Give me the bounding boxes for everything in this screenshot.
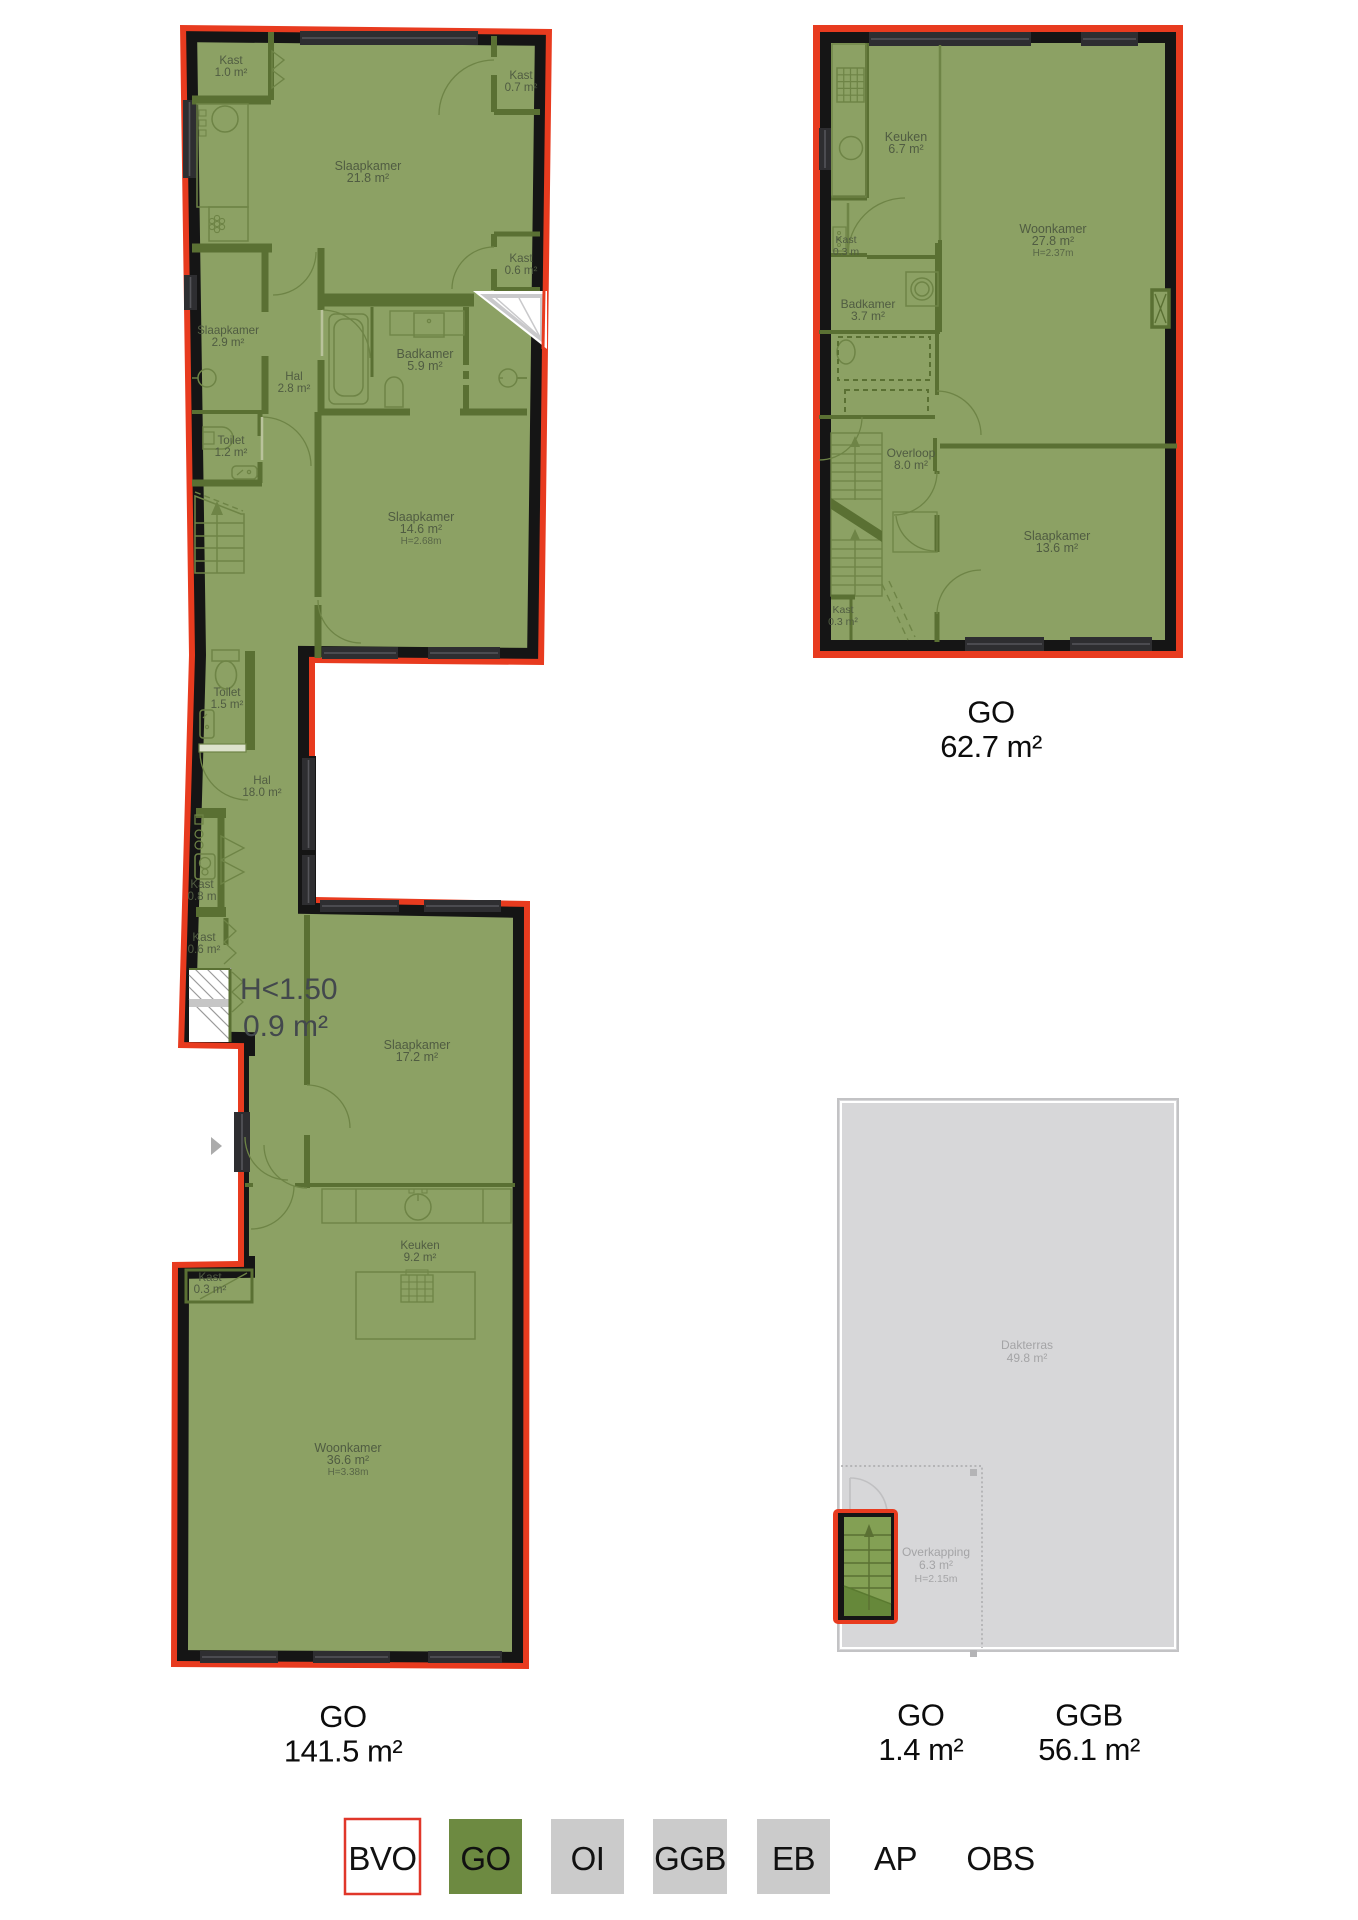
svg-text:0.8 m: 0.8 m (188, 890, 217, 903)
svg-text:6.3 m²: 6.3 m² (919, 1558, 953, 1572)
svg-text:Overkapping: Overkapping (902, 1545, 970, 1559)
svg-text:0.6 m²: 0.6 m² (505, 264, 538, 277)
svg-text:GO: GO (967, 695, 1014, 730)
svg-text:Kast: Kast (835, 234, 856, 246)
svg-text:H=2.68m: H=2.68m (401, 536, 442, 547)
svg-text:62.7 m²: 62.7 m² (940, 729, 1042, 764)
svg-text:141.5 m²: 141.5 m² (284, 1734, 403, 1769)
svg-text:18.0 m²: 18.0 m² (242, 786, 281, 799)
svg-text:H=2.37m: H=2.37m (1033, 248, 1074, 259)
svg-text:3.7 m²: 3.7 m² (851, 309, 885, 323)
svg-text:27.8 m²: 27.8 m² (1032, 234, 1074, 248)
svg-text:21.8 m²: 21.8 m² (347, 171, 389, 185)
svg-text:0.9 m²: 0.9 m² (243, 1010, 328, 1043)
svg-text:H=3.38m: H=3.38m (328, 1467, 369, 1478)
svg-text:49.8 m²: 49.8 m² (1007, 1351, 1048, 1365)
svg-text:0.6 m²: 0.6 m² (188, 943, 221, 956)
svg-text:0.3 m²: 0.3 m² (194, 1283, 227, 1296)
svg-text:36.6 m²: 36.6 m² (327, 1453, 369, 1467)
svg-text:Dakterras: Dakterras (1001, 1338, 1053, 1352)
svg-text:0.3 m²: 0.3 m² (828, 616, 858, 628)
svg-text:56.1 m²: 56.1 m² (1038, 1732, 1140, 1767)
svg-text:BVO: BVO (348, 1840, 416, 1877)
svg-text:2.9 m²: 2.9 m² (212, 336, 245, 349)
svg-text:GO: GO (897, 1698, 944, 1733)
svg-text:14.6 m²: 14.6 m² (400, 522, 442, 536)
svg-text:1.4 m²: 1.4 m² (878, 1732, 963, 1767)
svg-text:5.9 m²: 5.9 m² (407, 359, 442, 373)
svg-text:1.0 m²: 1.0 m² (215, 66, 248, 79)
svg-text:H<1.50: H<1.50 (240, 973, 338, 1006)
svg-text:OBS: OBS (966, 1840, 1034, 1877)
svg-text:0.7 m²: 0.7 m² (505, 81, 538, 94)
svg-text:GGB: GGB (654, 1840, 726, 1877)
svg-text:AP: AP (874, 1840, 917, 1877)
svg-text:0.3 m: 0.3 m (833, 246, 860, 258)
svg-text:GGB: GGB (1055, 1698, 1122, 1733)
svg-text:6.7 m²: 6.7 m² (888, 142, 923, 156)
svg-text:9.2 m²: 9.2 m² (404, 1251, 437, 1264)
svg-text:2.8 m²: 2.8 m² (278, 382, 311, 395)
svg-text:EB: EB (772, 1840, 815, 1877)
svg-text:H=2.15m: H=2.15m (915, 1573, 958, 1585)
svg-text:1.2 m²: 1.2 m² (215, 446, 248, 459)
svg-text:GO: GO (319, 1699, 366, 1734)
svg-text:1.5 m²: 1.5 m² (211, 698, 244, 711)
svg-text:GO: GO (460, 1840, 510, 1877)
svg-text:Kast: Kast (832, 604, 853, 616)
svg-text:17.2 m²: 17.2 m² (396, 1050, 438, 1064)
svg-text:13.6 m²: 13.6 m² (1036, 541, 1078, 555)
svg-text:OI: OI (571, 1840, 605, 1877)
svg-text:8.0 m²: 8.0 m² (894, 458, 928, 472)
